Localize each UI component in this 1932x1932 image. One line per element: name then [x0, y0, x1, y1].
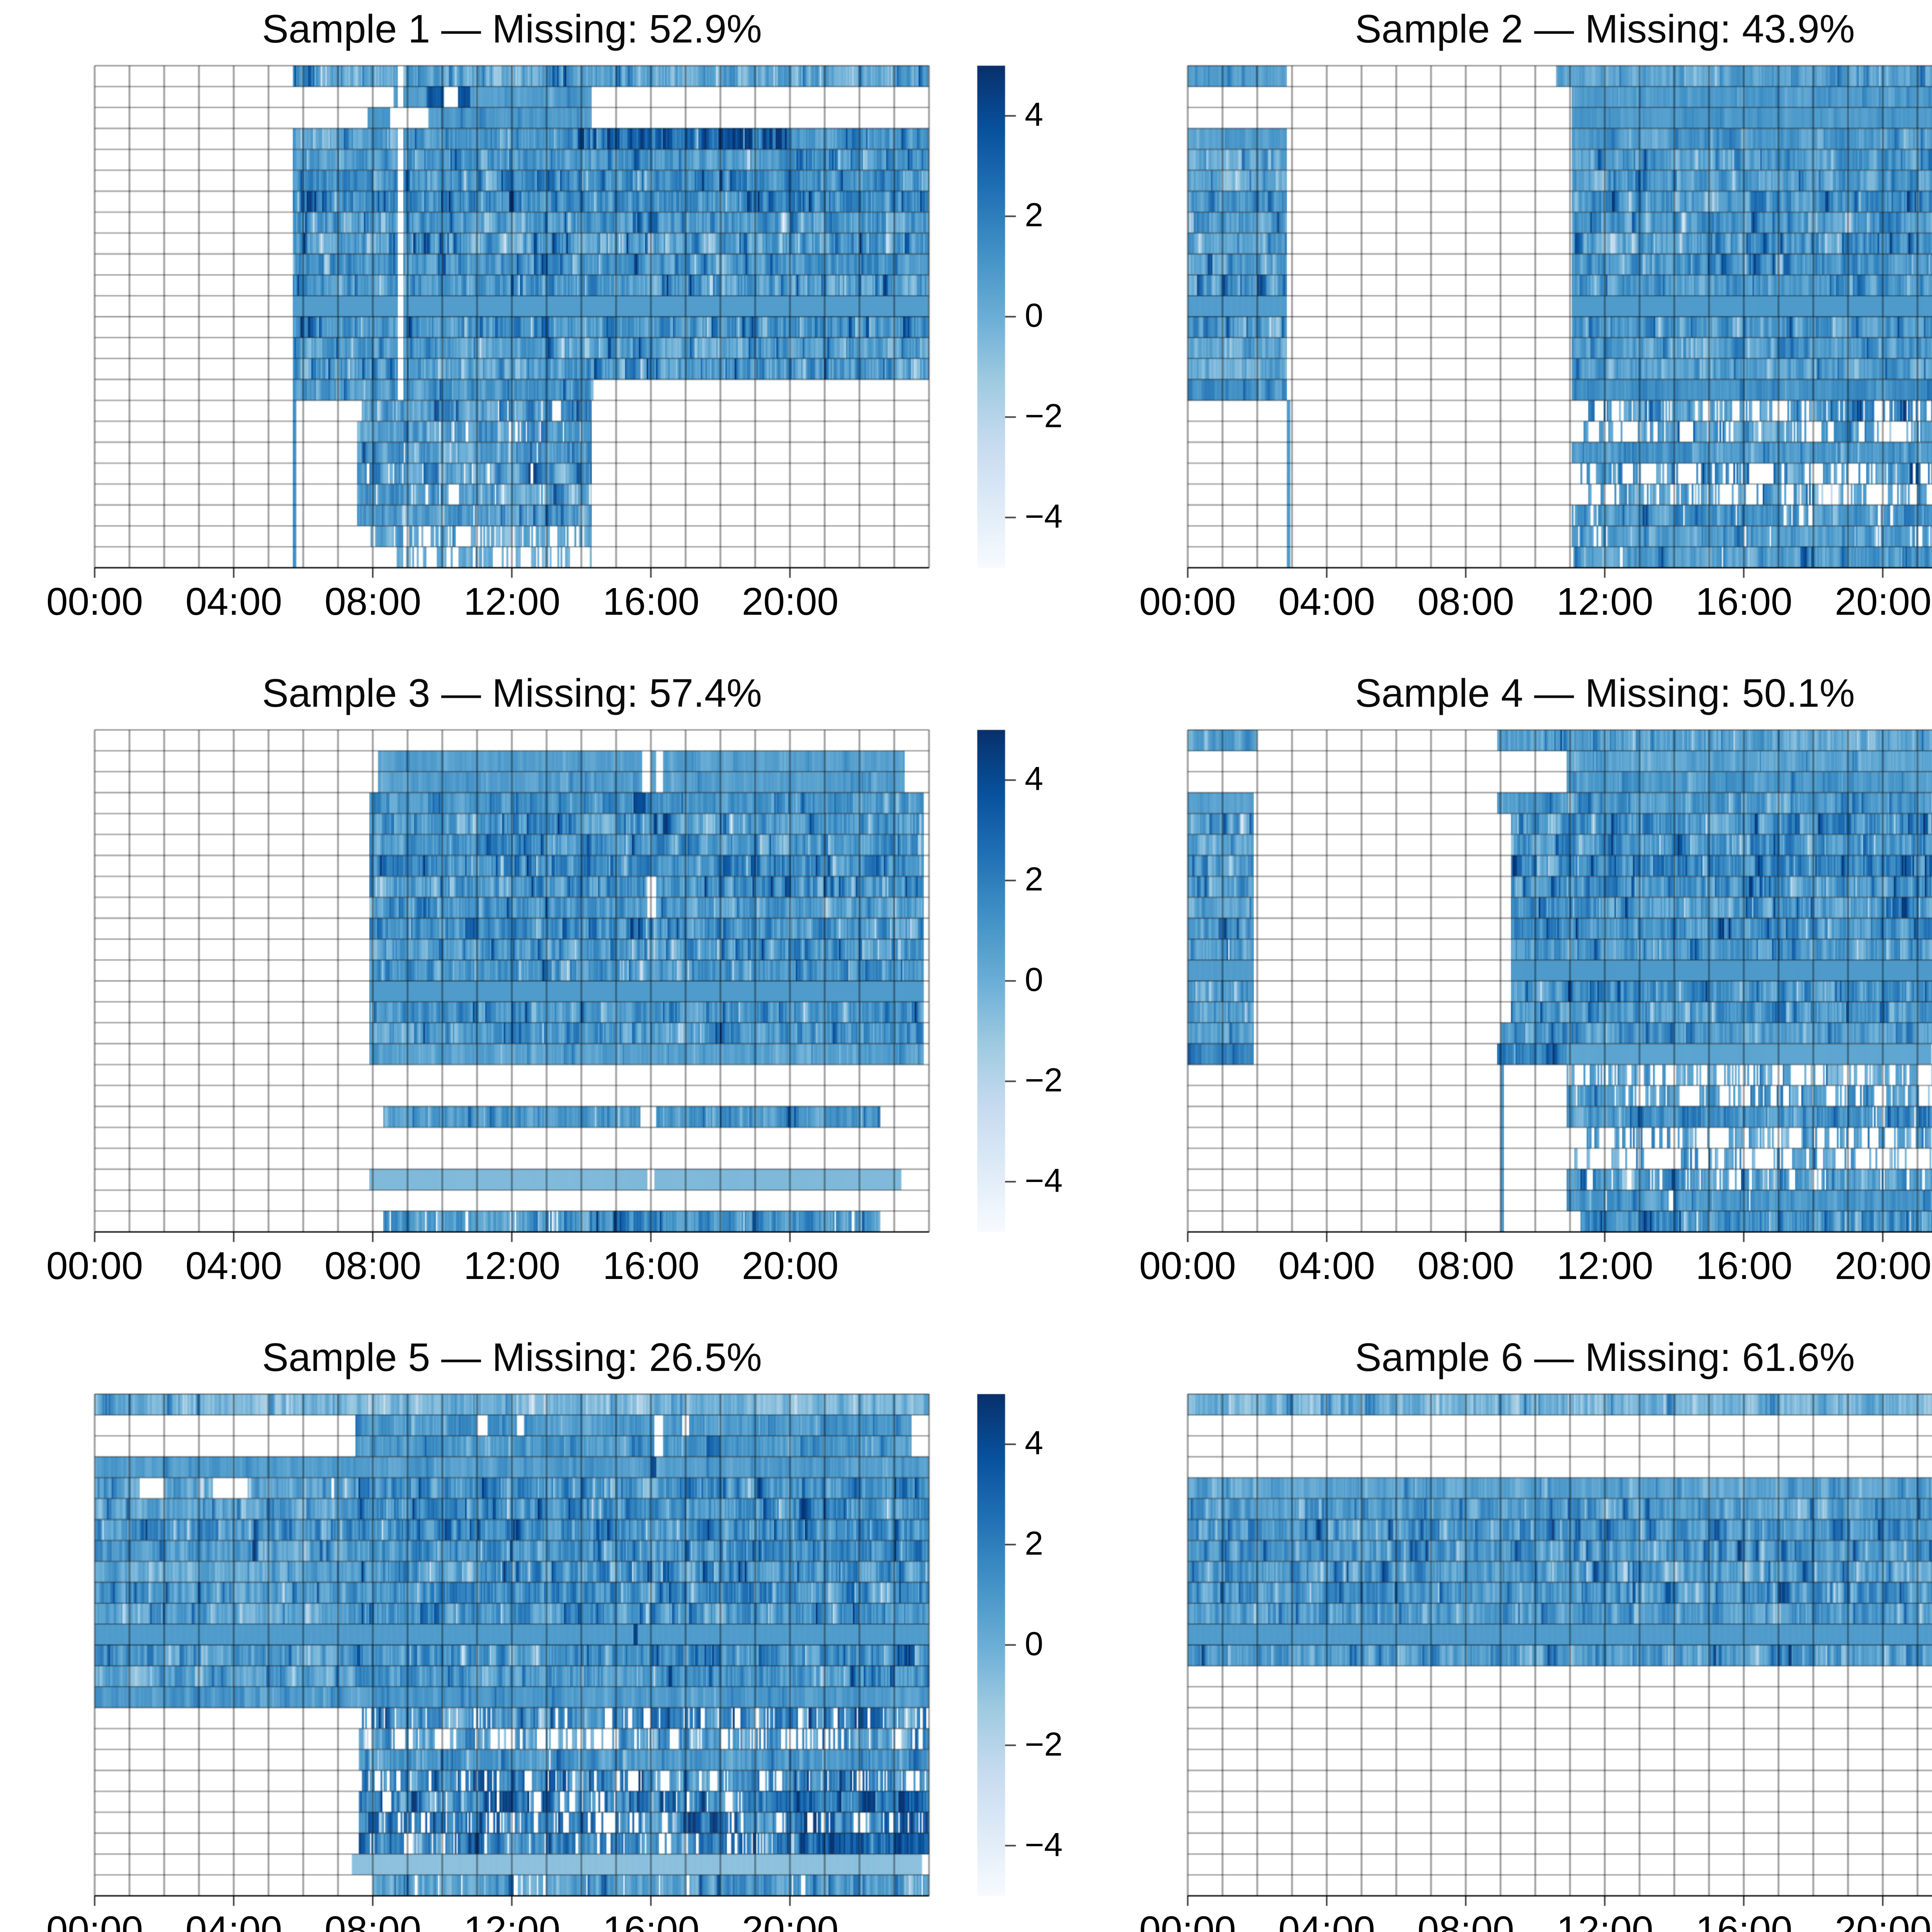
x-tick-label: 04:00 — [185, 1909, 282, 1932]
subplot-sample-5: Sample 5 — Missing: 26.5% 00:0004:0008:0… — [0, 1328, 1093, 1932]
subplot-title: Sample 4 — Missing: 50.1% — [1188, 668, 1932, 718]
heatmap-canvas — [0, 0, 1093, 664]
colorbar-tick-label: 0 — [1025, 1626, 1043, 1662]
x-tick-label: 16:00 — [1696, 1909, 1792, 1932]
x-tick-label: 20:00 — [1835, 1245, 1931, 1287]
colorbar-tick-label: 0 — [1025, 962, 1043, 997]
x-tick-label: 16:00 — [1696, 1245, 1792, 1287]
colorbar-tick-label: 2 — [1025, 1526, 1043, 1561]
colorbar-tick-label: 2 — [1025, 861, 1043, 897]
x-tick-label: 12:00 — [464, 580, 560, 623]
x-tick-label: 20:00 — [742, 580, 838, 623]
x-tick-label: 04:00 — [1278, 1909, 1375, 1932]
figure: Sample 1 — Missing: 52.9% 00:0004:0008:0… — [0, 0, 1932, 1932]
colorbar-tick-label: −4 — [1025, 498, 1063, 534]
x-tick-label: 12:00 — [1556, 580, 1653, 623]
heatmap-canvas — [1093, 664, 1932, 1328]
x-tick-label: 04:00 — [185, 1245, 282, 1287]
heatmap-canvas — [1093, 0, 1932, 664]
colorbar-tick-label: −2 — [1025, 1726, 1063, 1762]
x-tick-label: 16:00 — [1696, 580, 1792, 623]
x-tick-label: 04:00 — [1278, 1245, 1375, 1287]
x-tick-label: 08:00 — [1417, 1909, 1514, 1932]
colorbar-tick-label: −4 — [1025, 1827, 1063, 1862]
x-tick-label: 08:00 — [1417, 580, 1514, 623]
x-tick-label: 04:00 — [185, 580, 282, 623]
x-tick-label: 12:00 — [464, 1245, 560, 1287]
x-tick-label: 00:00 — [1139, 1245, 1236, 1287]
x-tick-label: 00:00 — [46, 1245, 143, 1287]
x-tick-label: 04:00 — [1278, 580, 1375, 623]
subplot-title: Sample 5 — Missing: 26.5% — [95, 1332, 929, 1383]
x-tick-label: 08:00 — [325, 1245, 421, 1287]
x-tick-label: 12:00 — [1556, 1245, 1653, 1287]
x-tick-label: 20:00 — [1835, 580, 1931, 623]
x-tick-label: 00:00 — [46, 1909, 143, 1932]
x-tick-label: 16:00 — [603, 580, 699, 623]
subplot-sample-4: Sample 4 — Missing: 50.1% 00:0004:0008:0… — [1093, 664, 1932, 1328]
x-tick-label: 00:00 — [1139, 1909, 1236, 1932]
heatmap-canvas — [0, 664, 1093, 1328]
colorbar-tick-label: 2 — [1025, 197, 1043, 233]
subplot-sample-3: Sample 3 — Missing: 57.4% 00:0004:0008:0… — [0, 664, 1093, 1328]
x-tick-label: 08:00 — [325, 580, 421, 623]
x-tick-label: 20:00 — [1835, 1909, 1931, 1932]
subplot-title: Sample 6 — Missing: 61.6% — [1188, 1332, 1932, 1383]
heatmap-canvas — [1093, 1328, 1932, 1932]
colorbar-tick-label: −2 — [1025, 1062, 1063, 1098]
subplot-title: Sample 1 — Missing: 52.9% — [95, 4, 929, 54]
subplot-title: Sample 2 — Missing: 43.9% — [1188, 4, 1932, 54]
subplot-title: Sample 3 — Missing: 57.4% — [95, 668, 929, 718]
x-tick-label: 16:00 — [603, 1909, 699, 1932]
x-tick-label: 00:00 — [46, 580, 143, 623]
x-tick-label: 12:00 — [464, 1909, 560, 1932]
colorbar-tick-label: −2 — [1025, 398, 1063, 434]
subplot-sample-2: Sample 2 — Missing: 43.9% 00:0004:0008:0… — [1093, 0, 1932, 664]
x-tick-label: 20:00 — [742, 1909, 838, 1932]
colorbar-tick-label: 4 — [1025, 97, 1043, 132]
x-tick-label: 12:00 — [1556, 1909, 1653, 1932]
subplot-sample-1: Sample 1 — Missing: 52.9% 00:0004:0008:0… — [0, 0, 1093, 664]
colorbar-tick-label: 4 — [1025, 761, 1043, 796]
x-tick-label: 00:00 — [1139, 580, 1236, 623]
colorbar-tick-label: 4 — [1025, 1425, 1043, 1461]
colorbar-tick-label: 0 — [1025, 298, 1043, 333]
subplot-sample-6: Sample 6 — Missing: 61.6% 00:0004:0008:0… — [1093, 1328, 1932, 1932]
x-tick-label: 20:00 — [742, 1245, 838, 1287]
x-tick-label: 08:00 — [1417, 1245, 1514, 1287]
heatmap-canvas — [0, 1328, 1093, 1932]
x-tick-label: 16:00 — [603, 1245, 699, 1287]
x-tick-label: 08:00 — [325, 1909, 421, 1932]
colorbar-tick-label: −4 — [1025, 1163, 1063, 1198]
